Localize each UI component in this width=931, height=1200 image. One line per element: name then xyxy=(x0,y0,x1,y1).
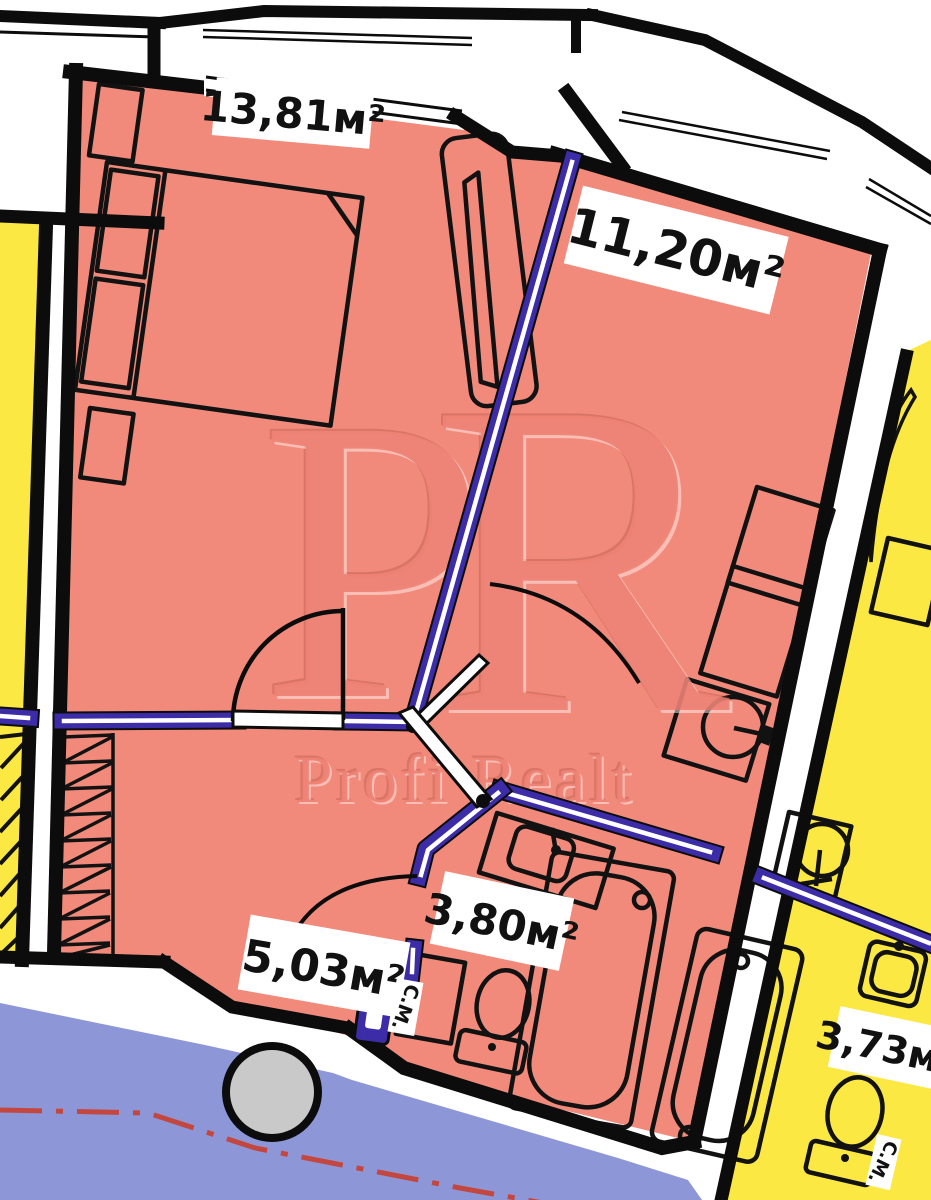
structural-column xyxy=(226,1046,318,1138)
watermark: P P P R R R Profi Realt Profi Realt Prof… xyxy=(258,308,735,819)
floor-plan-canvas: P P P R R R Profi Realt Profi Realt Prof… xyxy=(0,0,931,1200)
bedroom-door-leaf xyxy=(233,711,343,729)
svg-text:R: R xyxy=(430,310,732,808)
floor-plan-svg: P P P R R R Profi Realt Profi Realt Prof… xyxy=(0,0,931,1200)
